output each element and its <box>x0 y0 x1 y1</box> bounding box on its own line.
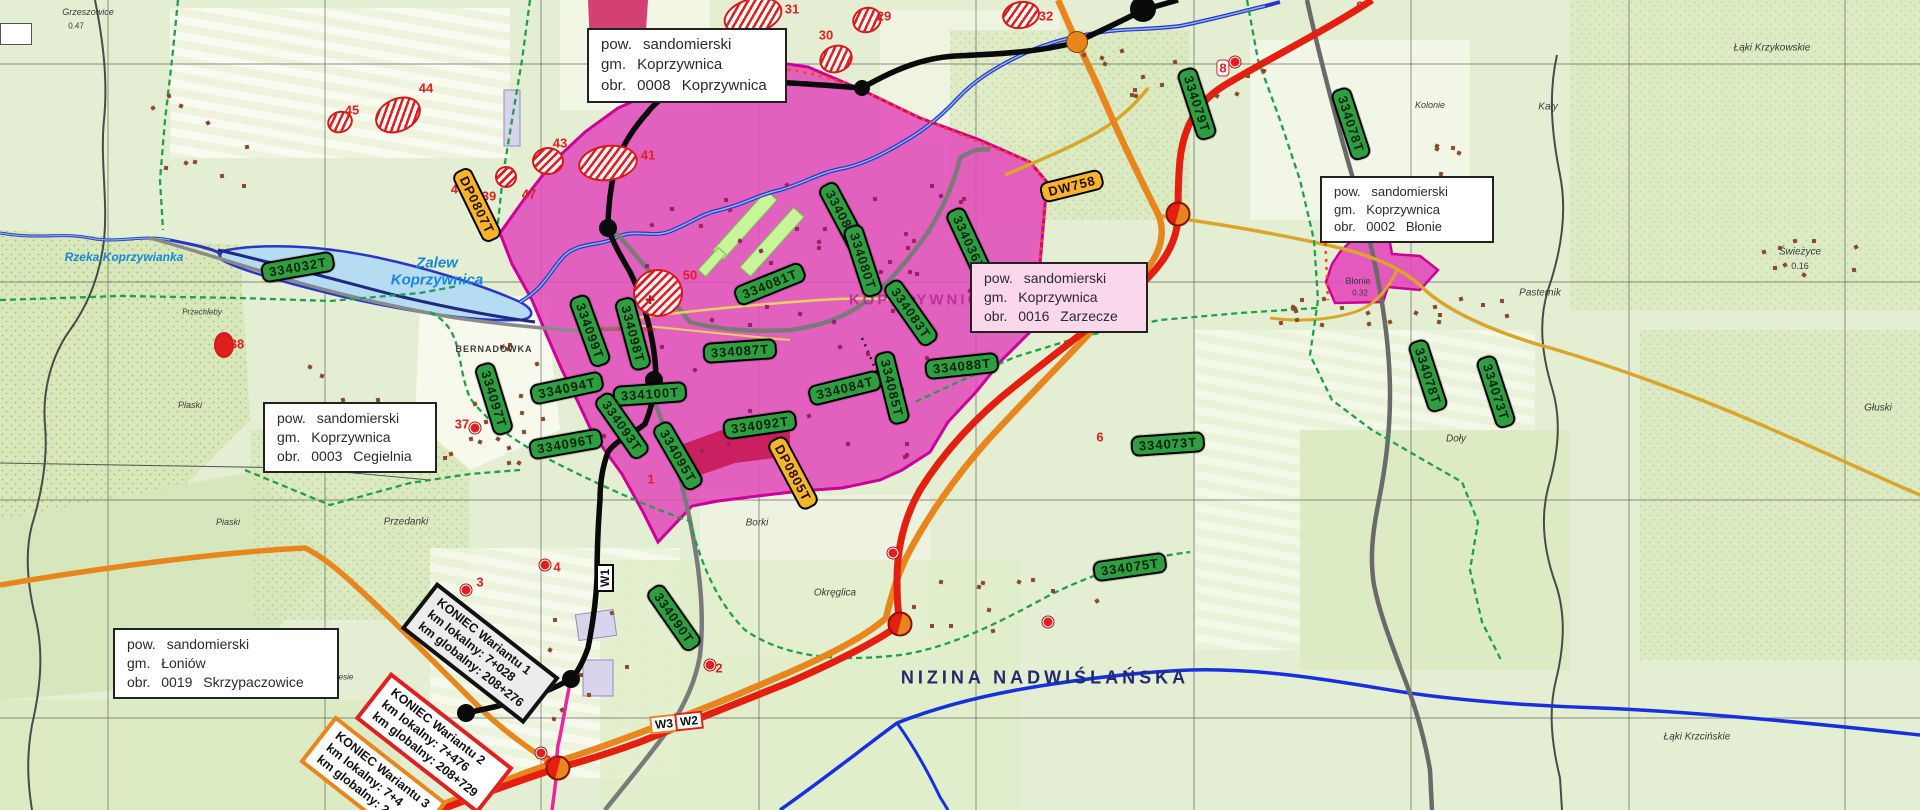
place-label: Doły <box>1446 434 1466 445</box>
region-name-label: NIZINA NADWIŚLAŃSKA <box>901 668 1189 689</box>
place-label: Łąki Krzykowskie <box>1734 43 1811 54</box>
place-label: Pasternik <box>1519 288 1561 299</box>
building-dot <box>976 584 981 589</box>
building-dot <box>307 364 312 369</box>
building-dot <box>795 227 800 232</box>
area-number: 41 <box>641 148 655 163</box>
water-label: Rzeka Koprzywianka <box>65 250 184 264</box>
building-dot <box>769 261 773 265</box>
hatched-area-marker <box>532 147 564 175</box>
building-dot <box>887 260 891 264</box>
building-dot <box>220 174 225 179</box>
building-dot <box>929 184 933 188</box>
building-dot <box>1801 272 1806 277</box>
parcel-label: 334100T <box>612 381 688 407</box>
area-number: 21 <box>544 753 558 768</box>
building-dot <box>242 184 246 188</box>
water-label: Koprzywnica <box>391 272 484 289</box>
building-dot <box>506 446 511 451</box>
point-marker <box>470 423 481 434</box>
area-number: 9 <box>1356 0 1363 14</box>
building-dot <box>649 222 654 227</box>
building-dot <box>1434 147 1439 152</box>
place-label: Łąki Krzcińskie <box>1664 732 1731 743</box>
building-dot <box>245 145 250 150</box>
area-number: 29 <box>877 9 891 24</box>
building-dot <box>1432 304 1437 309</box>
hatched-area-marker <box>369 89 427 140</box>
building-dot <box>1160 83 1165 88</box>
parcel-label: 334095T <box>650 419 705 494</box>
building-dot <box>609 611 614 616</box>
building-dot <box>699 224 704 229</box>
parcel-label: 334088T <box>924 352 1000 381</box>
route-node <box>854 80 870 96</box>
parcel-label: 334075T <box>1092 551 1169 582</box>
building-dot <box>991 628 996 633</box>
building-dot <box>914 272 918 276</box>
hatched-area-marker <box>1000 0 1042 32</box>
parcel-label: 334073T <box>1130 431 1206 457</box>
area-number: 4 <box>553 560 560 575</box>
place-label: Przedanki <box>384 517 428 528</box>
building-dot <box>1504 314 1509 319</box>
building-dot <box>1459 296 1464 301</box>
building-dot <box>559 708 564 713</box>
info-box-skrzypaczowice-0019: pow. sandomierskigm. Łoniówobr. 0019 Skr… <box>113 628 339 699</box>
building-dot <box>1812 238 1816 242</box>
building-dot <box>1782 262 1787 267</box>
building-dot <box>903 232 908 237</box>
place-label: 0.47 <box>68 22 84 31</box>
place-label: Błonie <box>1345 276 1370 286</box>
parcel-label: 334084T <box>806 369 883 407</box>
building-dot <box>1119 49 1124 54</box>
road-junction-marker <box>888 612 913 637</box>
building-dot <box>912 239 917 244</box>
building-dot <box>670 207 674 211</box>
building-dot <box>1102 61 1107 66</box>
building-dot <box>1852 267 1857 272</box>
building-dot <box>1500 299 1504 303</box>
building-dot <box>547 648 552 653</box>
parcel-label: 334032T <box>260 250 337 284</box>
place-label: Kały <box>1538 102 1557 113</box>
building-dot <box>179 104 184 109</box>
building-dot <box>710 317 715 322</box>
building-dot <box>1278 320 1283 325</box>
area-number: 47 <box>522 187 536 202</box>
building-dot <box>1340 305 1345 310</box>
hatched-area-marker <box>633 269 683 317</box>
area-number: 31 <box>785 2 799 17</box>
building-dot <box>1457 150 1462 155</box>
area-number: 6 <box>1096 430 1103 445</box>
place-label: Przechleby <box>182 308 222 317</box>
building-dot <box>906 245 910 249</box>
building-dot <box>473 401 478 406</box>
building-dot <box>1094 598 1099 603</box>
map-overlay: 31302932444543414740393850371432221689✚Z… <box>0 0 1920 810</box>
building-dot <box>166 93 171 98</box>
building-dot <box>164 166 169 171</box>
hatched-area-marker <box>576 141 640 185</box>
area-number: 8 <box>1216 60 1229 77</box>
building-dot <box>551 717 556 722</box>
parcel-label: 334087T <box>702 338 778 364</box>
parcel-label: 334073T <box>1475 353 1518 430</box>
area-number: 45 <box>345 103 359 118</box>
building-dot <box>516 460 521 465</box>
area-number: 37 <box>455 417 469 432</box>
building-dot <box>1132 88 1136 92</box>
building-dot <box>748 323 752 327</box>
building-dot <box>1082 52 1087 57</box>
building-dot <box>660 345 665 350</box>
place-label: Świeżyce <box>1779 247 1821 258</box>
building-dot <box>587 693 591 697</box>
building-dot <box>737 238 742 243</box>
building-dot <box>727 442 732 447</box>
building-dot <box>758 248 763 253</box>
building-dot <box>184 161 189 166</box>
building-dot <box>1773 266 1777 270</box>
corner-box <box>0 23 32 45</box>
building-dot <box>765 305 769 309</box>
info-box-zarzecze-0016: pow. sandomierskigm. Koprzywnicaobr. 001… <box>970 262 1148 333</box>
building-dot <box>986 607 991 612</box>
place-label: Głuski <box>1864 403 1892 414</box>
point-marker <box>1043 617 1054 628</box>
building-dot <box>748 409 752 413</box>
point-marker <box>888 548 899 559</box>
building-dot <box>496 437 501 442</box>
building-dot <box>1853 244 1858 249</box>
parcel-label: 334081T <box>732 260 809 307</box>
building-dot <box>1051 589 1055 593</box>
building-dot <box>1173 59 1178 64</box>
building-dot <box>872 197 876 201</box>
building-dot <box>1481 303 1485 307</box>
place-label: BERNADÓWKA <box>456 344 533 354</box>
building-dot <box>1016 579 1021 584</box>
building-dot <box>939 194 944 199</box>
building-dot <box>823 227 827 231</box>
building-dot <box>1100 55 1105 60</box>
building-dot <box>1451 145 1456 150</box>
building-dot <box>797 312 802 317</box>
point-marker <box>1230 57 1241 68</box>
building-dot <box>1366 311 1371 316</box>
building-dot <box>831 320 836 325</box>
info-box-blonie-0002: pow. sandomierskigm. Koprzywnicaobr. 000… <box>1320 176 1494 243</box>
area-number: 30 <box>819 28 833 43</box>
building-dot <box>1437 313 1441 317</box>
building-dot <box>1388 319 1393 324</box>
building-dot <box>478 439 483 444</box>
building-dot <box>468 437 473 442</box>
road-number-label: DW758 <box>1038 168 1106 204</box>
area-number: 32 <box>1039 9 1053 24</box>
building-dot <box>1140 74 1145 79</box>
info-box-cegielnia-0003: pow. sandomierskigm. Koprzywnicaobr. 000… <box>263 402 437 473</box>
route-node <box>1130 0 1156 22</box>
place-label: Piaski <box>216 517 240 527</box>
building-dot <box>1246 73 1250 77</box>
area-number: 50 <box>683 268 697 283</box>
building-dot <box>1761 250 1766 255</box>
building-dot <box>205 120 210 125</box>
place-label: Borki <box>746 518 769 529</box>
building-dot <box>507 460 512 465</box>
building-dot <box>541 417 546 422</box>
parcel-label: 334096T <box>528 427 605 461</box>
church-icon: ✚ <box>645 293 655 307</box>
water-label: Zalew <box>416 255 458 272</box>
building-dot <box>553 618 557 622</box>
building-dot <box>846 442 850 446</box>
building-dot <box>519 394 524 399</box>
map-canvas[interactable]: 31302932444543414740393850371432221689✚Z… <box>0 0 1920 810</box>
building-dot <box>938 580 943 585</box>
area-number: 38 <box>230 337 244 352</box>
parcel-label: 334094T <box>528 370 605 406</box>
parcel-label: 334090T <box>644 582 704 655</box>
point-marker <box>540 560 551 571</box>
building-dot <box>878 270 883 275</box>
building-dot <box>1134 93 1139 98</box>
building-dot <box>1437 320 1442 325</box>
parcel-label: 334083T <box>881 277 941 350</box>
area-number: 44 <box>419 81 433 96</box>
building-dot <box>449 452 454 457</box>
place-label: Kolonie <box>1415 100 1445 110</box>
building-dot <box>908 270 913 275</box>
variant-marker: W1 <box>596 564 614 592</box>
parcel-label: 334092T <box>722 409 799 440</box>
building-dot <box>1215 94 1220 99</box>
route-node <box>599 219 617 237</box>
place-label: Piaski <box>178 400 202 410</box>
road-number-label: DP0805T <box>765 434 820 513</box>
parcel-label: 334079T <box>1176 65 1219 142</box>
building-dot <box>521 430 526 435</box>
building-dot <box>520 411 525 416</box>
place-label: Okręglica <box>814 588 856 599</box>
hatched-area-marker <box>495 166 517 188</box>
building-dot <box>784 182 789 187</box>
building-dot <box>724 198 728 202</box>
building-dot <box>949 624 953 628</box>
hatched-area-marker <box>815 40 857 78</box>
building-dot <box>1294 317 1299 322</box>
building-dot <box>645 264 650 269</box>
variant-marker: W2 <box>674 711 704 732</box>
building-dot <box>692 367 697 372</box>
building-dot <box>193 160 198 165</box>
route-node <box>457 704 475 722</box>
building-dot <box>1261 68 1266 73</box>
building-dot <box>1413 310 1418 315</box>
building-dot <box>1030 578 1035 583</box>
building-dot <box>817 240 822 245</box>
point-marker <box>461 585 472 596</box>
parcel-label: 334078T <box>1407 337 1450 414</box>
building-dot <box>727 207 732 212</box>
building-dot <box>483 419 488 424</box>
place-label: Grzeszowice <box>62 7 114 17</box>
route-node <box>562 670 580 688</box>
area-number: 3 <box>476 575 483 590</box>
building-dot <box>912 604 916 608</box>
parcel-label: 334080T <box>842 222 885 299</box>
building-dot <box>1321 297 1326 302</box>
point-marker <box>705 660 716 671</box>
place-label: 0.32 <box>1352 289 1368 298</box>
building-dot <box>1300 298 1304 302</box>
building-dot <box>151 105 156 110</box>
building-dot <box>442 456 446 460</box>
building-dot <box>837 344 842 349</box>
building-dot <box>699 448 704 453</box>
building-dot <box>958 200 963 205</box>
road-junction-marker <box>1166 202 1191 227</box>
building-dot <box>1367 321 1372 326</box>
area-number: 2 <box>715 661 722 676</box>
building-dot <box>807 414 812 419</box>
building-dot <box>625 665 629 669</box>
place-label: 0.16 <box>1791 261 1809 271</box>
parcel-label: 334078T <box>1330 85 1373 162</box>
building-dot <box>930 624 934 628</box>
building-dot <box>320 374 325 379</box>
area-number: 1 <box>647 472 654 487</box>
building-dot <box>1320 323 1325 328</box>
building-dot <box>535 361 540 366</box>
building-dot <box>1235 91 1240 96</box>
route-node-orange <box>1066 31 1088 53</box>
area-number: 43 <box>553 136 567 151</box>
info-box-koprzywnica-0008: pow. sandomierskigm. Koprzywnicaobr. 000… <box>587 28 787 103</box>
building-dot <box>905 441 909 445</box>
building-dot <box>1793 239 1798 244</box>
building-dot <box>865 351 870 356</box>
building-dot <box>1293 309 1298 314</box>
building-dot <box>817 246 822 251</box>
